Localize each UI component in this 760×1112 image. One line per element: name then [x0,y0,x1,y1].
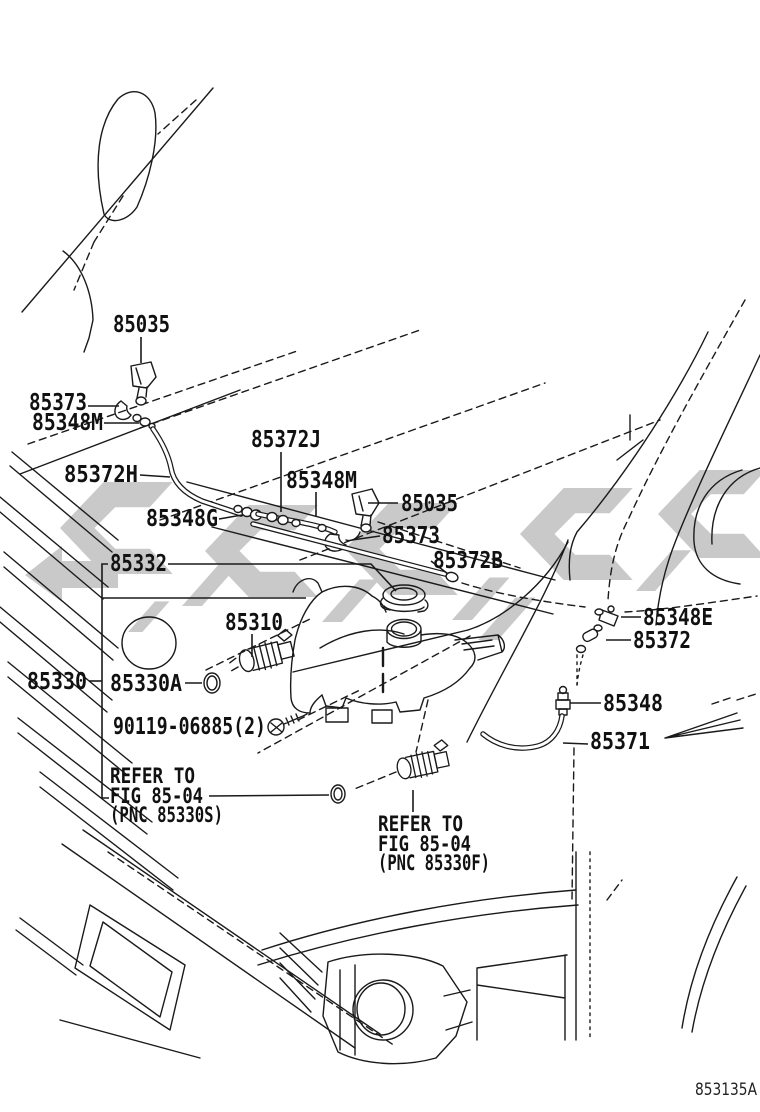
parts-diagram-windshield-washer: 85035 85373 85348M 85372J 85372H 85348M … [0,0,760,1112]
part-label-85332: 85332 [110,551,167,577]
washer-nozzle-front [131,362,156,405]
figure-code: 853135A [695,1080,757,1100]
part-label-85348M-mid: 85348M [286,468,357,494]
washer-pump-rear [393,739,453,782]
part-label-85372J: 85372J [251,427,321,453]
grommet-85330S [331,785,345,803]
part-label-85330: 85330 [27,669,87,695]
hose-clip-front [133,415,155,429]
wiper-blade [665,713,743,738]
fog-lamp [323,954,472,1064]
hose-elbow-front [115,401,131,419]
diagram-canvas: 85035 85373 85348M 85372J 85372H 85348M … [0,0,760,1112]
refer-note-85330S: REFER TO FIG 85-04 (PNC 85330S) [110,764,223,827]
headlamp [122,617,176,669]
part-label-85348M-left: 85348M [32,410,103,436]
part-label-90119-06885: 90119-06885(2) [113,714,266,740]
washer-hose-85371 [483,716,562,748]
part-label-85372B: 85372B [433,548,503,574]
screw-90119 [268,714,307,735]
leader-lines [88,337,641,812]
part-label-85035-top: 85035 [113,312,170,338]
check-valve-85348 [556,687,570,716]
part-label-85348G: 85348G [146,506,218,532]
part-label-85371: 85371 [590,729,650,755]
side-mirror [98,92,156,221]
part-label-85373-right: 85373 [382,523,440,549]
part-label-85310: 85310 [225,610,283,636]
part-label-85330A: 85330A [110,671,182,697]
license-plate-recess [75,905,185,1030]
grommet-85330A [204,673,220,693]
part-label-85372: 85372 [633,628,691,654]
part-label-85372H: 85372H [64,462,138,488]
part-label-85035-right: 85035 [401,491,458,517]
refer-note-line3: (PNC 85330F) [378,851,490,875]
refer-note-line3: (PNC 85330S) [110,803,223,827]
part-label-85348: 85348 [603,691,663,717]
refer-note-85330F: REFER TO FIG 85-04 (PNC 85330F) [378,812,490,875]
washer-hose-85372H [153,429,241,514]
grommet-85372 [577,628,599,653]
clip-85348E [594,606,618,631]
